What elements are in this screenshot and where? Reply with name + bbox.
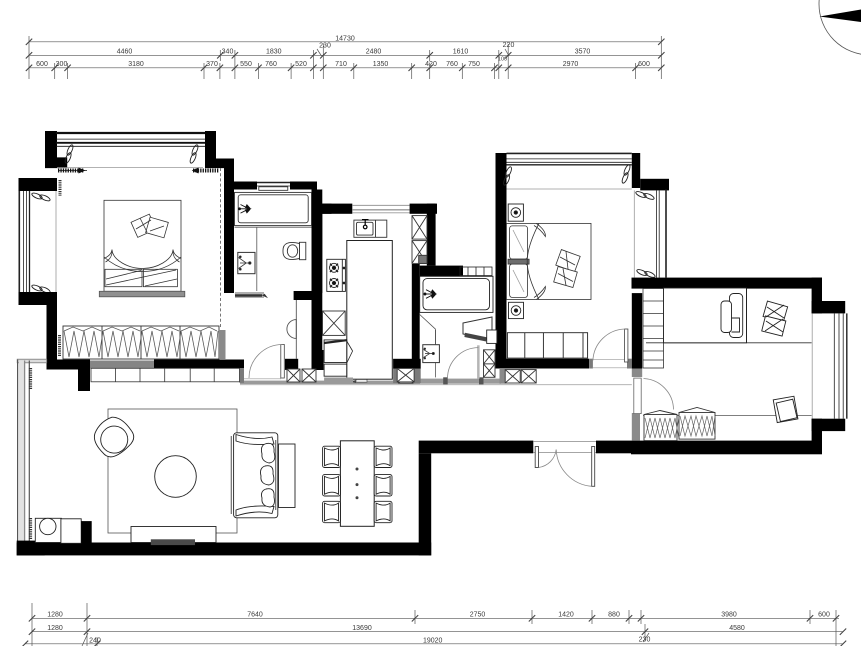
- svg-text:230: 230: [639, 637, 651, 644]
- svg-text:13690: 13690: [352, 625, 372, 632]
- svg-text:760: 760: [265, 61, 277, 68]
- svg-text:220: 220: [503, 42, 515, 49]
- svg-text:19020: 19020: [423, 638, 443, 645]
- svg-text:750: 750: [468, 61, 480, 68]
- svg-text:370: 370: [206, 61, 218, 68]
- svg-text:240: 240: [89, 638, 101, 645]
- svg-text:340: 340: [222, 48, 234, 55]
- svg-text:1350: 1350: [373, 61, 389, 68]
- svg-text:2750: 2750: [470, 611, 486, 618]
- svg-text:1420: 1420: [558, 611, 574, 618]
- svg-text:710: 710: [335, 61, 347, 68]
- svg-text:2970: 2970: [563, 61, 579, 68]
- svg-text:3980: 3980: [721, 611, 737, 618]
- svg-text:600: 600: [36, 61, 48, 68]
- svg-text:2480: 2480: [366, 48, 382, 55]
- svg-text:1280: 1280: [47, 625, 63, 632]
- svg-text:550: 550: [240, 61, 252, 68]
- svg-text:3180: 3180: [128, 61, 144, 68]
- svg-text:1830: 1830: [266, 48, 282, 55]
- svg-text:600: 600: [638, 61, 650, 68]
- svg-text:4580: 4580: [729, 625, 745, 632]
- svg-text:760: 760: [446, 61, 458, 68]
- svg-text:3570: 3570: [575, 48, 591, 55]
- svg-text:880: 880: [608, 611, 620, 618]
- svg-text:520: 520: [295, 61, 307, 68]
- svg-text:600: 600: [818, 611, 830, 618]
- svg-text:4460: 4460: [117, 48, 133, 55]
- svg-text:230: 230: [319, 43, 331, 50]
- svg-text:1280: 1280: [47, 611, 63, 618]
- svg-text:100: 100: [498, 57, 507, 63]
- svg-text:300: 300: [56, 61, 68, 68]
- svg-text:1610: 1610: [453, 48, 469, 55]
- svg-text:14730: 14730: [335, 35, 355, 42]
- svg-text:7640: 7640: [247, 611, 263, 618]
- svg-text:420: 420: [425, 61, 437, 68]
